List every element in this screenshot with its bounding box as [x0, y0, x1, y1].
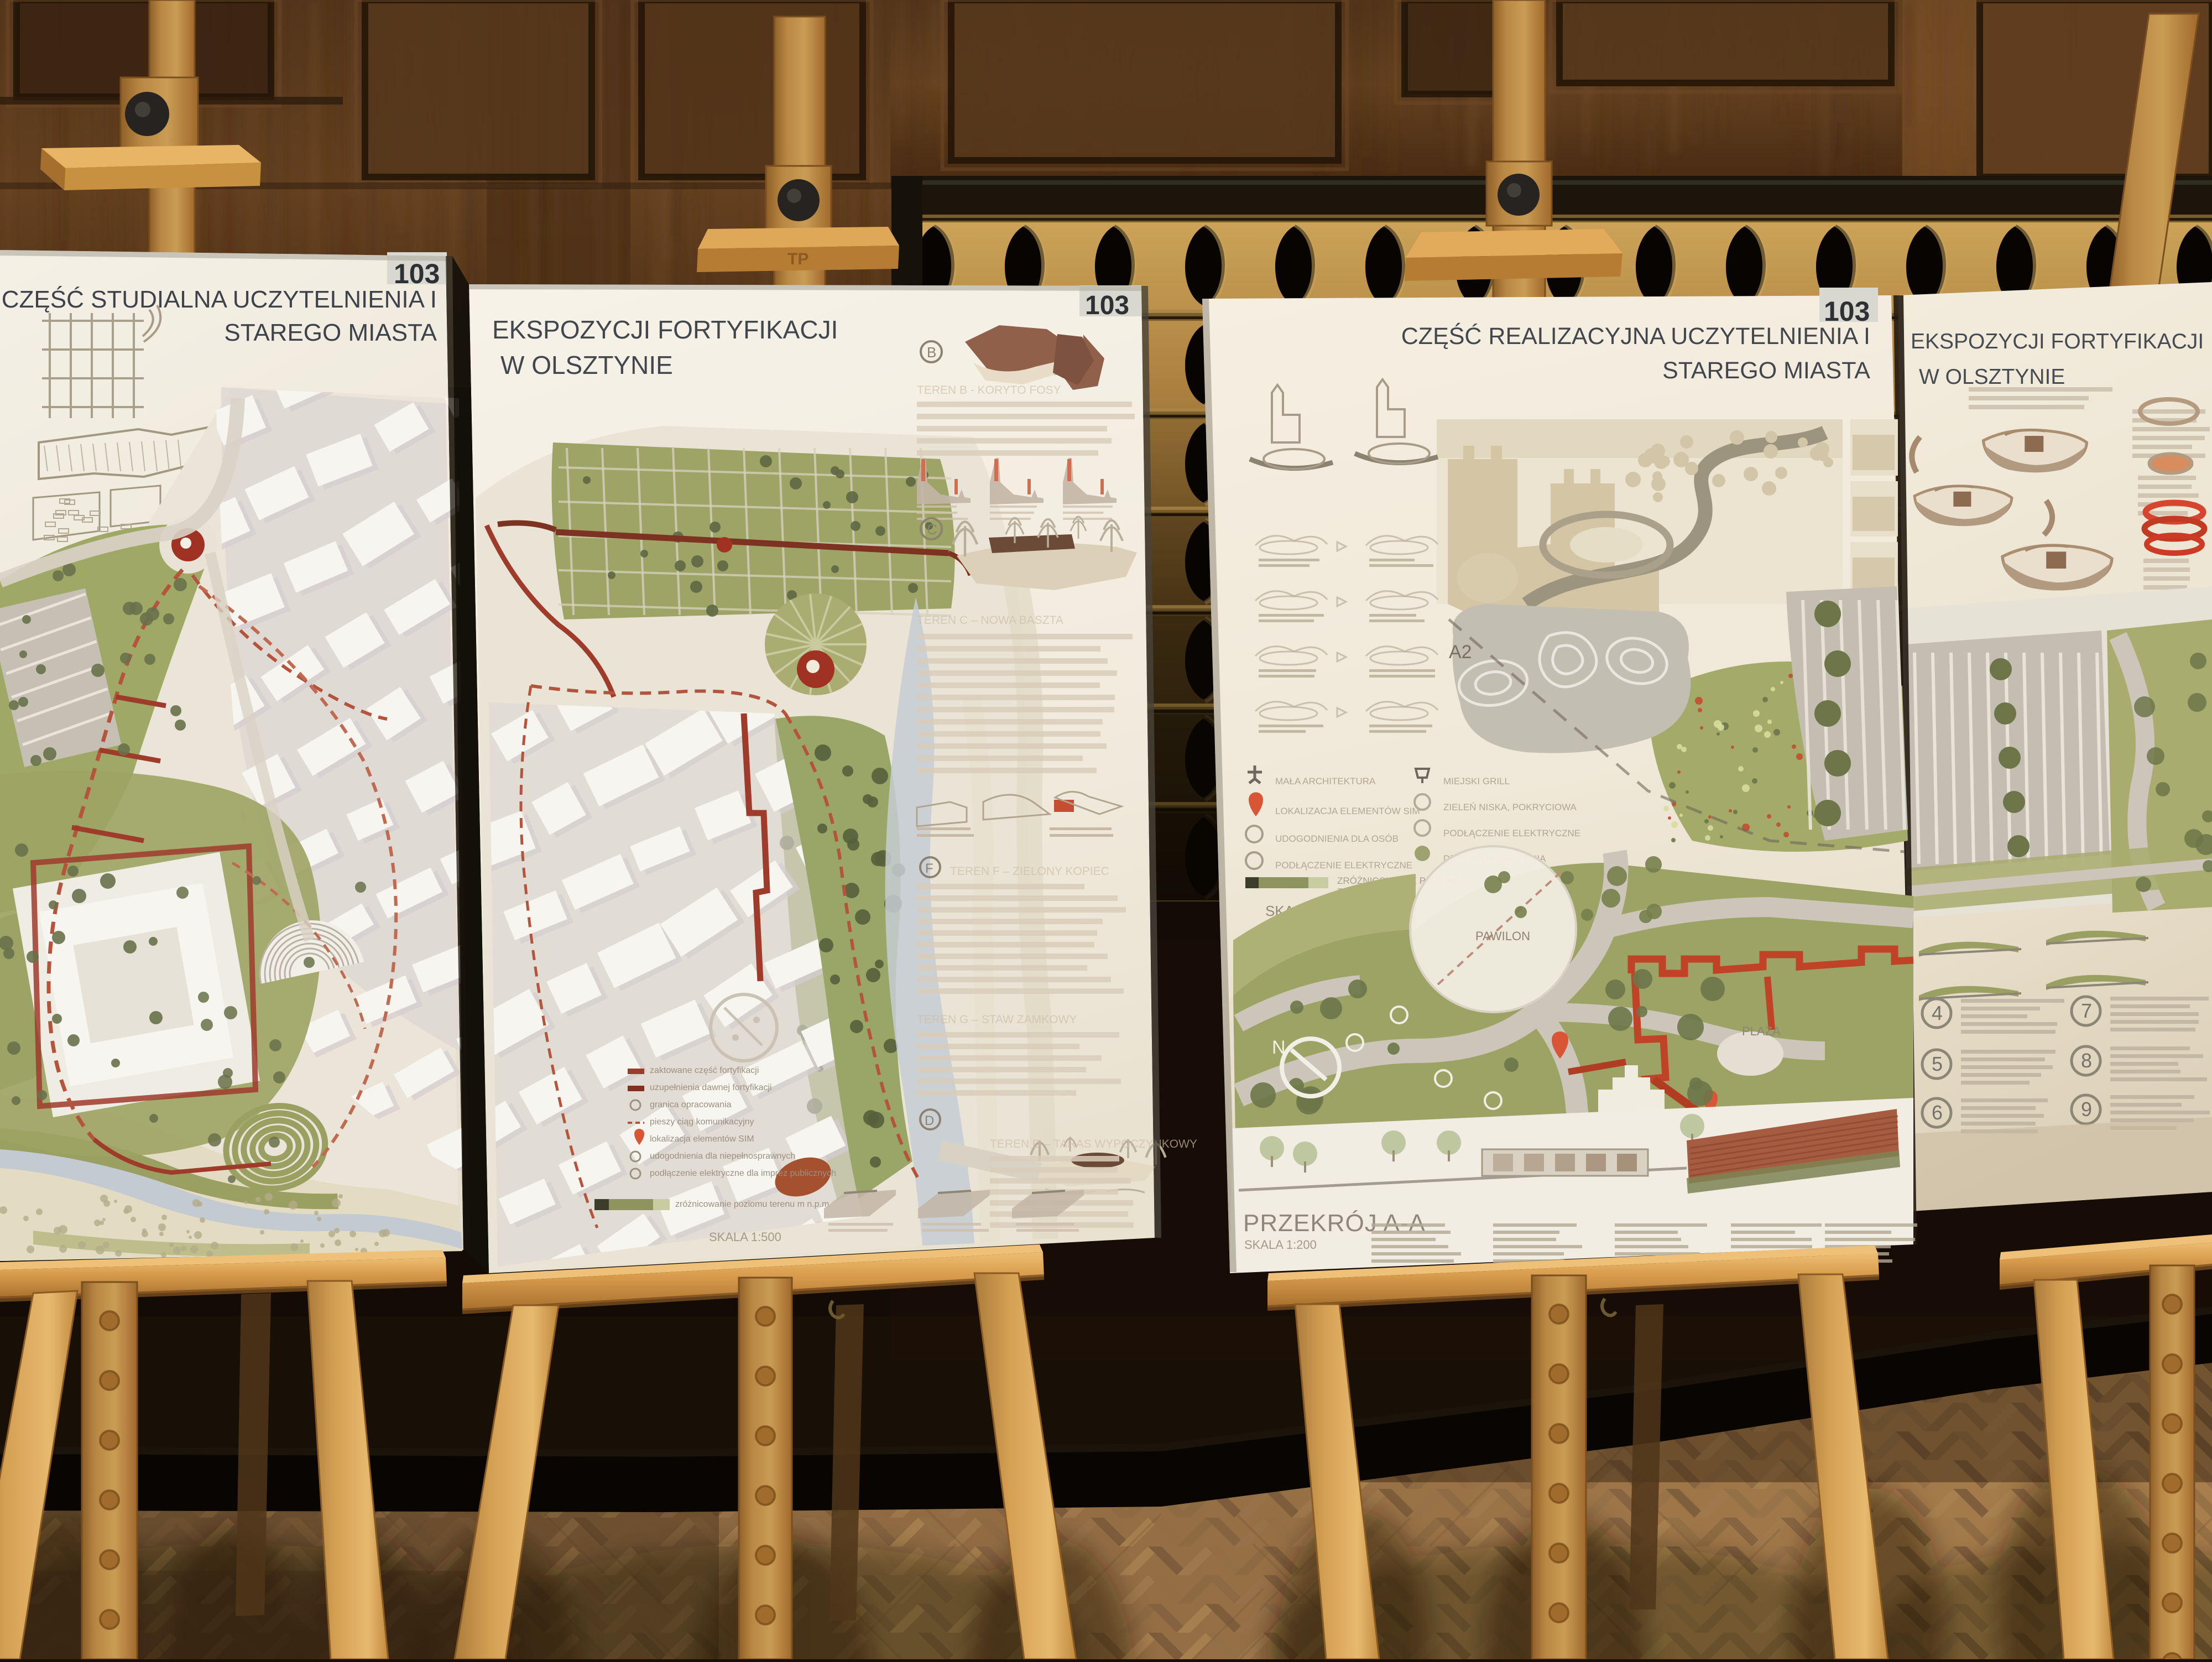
svg-text:5: 5	[1932, 1053, 1943, 1075]
svg-text:EKSPOZYCJI FORTYFIKACJI: EKSPOZYCJI FORTYFIKACJI	[492, 315, 838, 344]
svg-text:SKALA 1:200: SKALA 1:200	[1244, 1238, 1317, 1252]
svg-text:zaktowane część fortyfikacji: zaktowane część fortyfikacji	[650, 1066, 759, 1075]
svg-text:103: 103	[1085, 291, 1129, 320]
svg-text:CZĘŚĆ STUDIALNA UCZYTELNIENIA: CZĘŚĆ STUDIALNA UCZYTELNIENIA I	[2, 285, 437, 313]
svg-text:LOKALIZACJA ELEMENTÓW SIM: LOKALIZACJA ELEMENTÓW SIM	[1275, 806, 1420, 816]
svg-text:EKSPOZYCJI FORTYFIKACJI: EKSPOZYCJI FORTYFIKACJI	[1911, 330, 2204, 353]
svg-text:lokalizacja elementów SIM: lokalizacja elementów SIM	[650, 1134, 754, 1144]
svg-text:MAŁA ARCHITEKTURA: MAŁA ARCHITEKTURA	[1275, 776, 1376, 786]
svg-text:B: B	[927, 344, 936, 361]
svg-text:ZIELEŃ NISKA, POKRYCIOWA: ZIELEŃ NISKA, POKRYCIOWA	[1443, 802, 1577, 812]
svg-text:PLAZA: PLAZA	[1742, 1024, 1781, 1038]
svg-text:SKALA 1:500: SKALA 1:500	[709, 1230, 781, 1244]
svg-text:PAWILON: PAWILON	[1475, 929, 1530, 943]
svg-text:TEREN B - KORYTO FOSY: TEREN B - KORYTO FOSY	[917, 384, 1061, 397]
svg-text:A2: A2	[1449, 642, 1472, 663]
svg-text:F: F	[925, 861, 933, 876]
svg-text:TEREN D – TARAS WYPOCZYNKOWY: TEREN D – TARAS WYPOCZYNKOWY	[990, 1138, 1197, 1150]
svg-text:103: 103	[1824, 296, 1870, 327]
svg-text:8: 8	[2081, 1049, 2092, 1072]
svg-text:TEREN C – NOWA BASZTA: TEREN C – NOWA BASZTA	[917, 614, 1063, 627]
svg-text:103: 103	[394, 258, 440, 289]
svg-text:zróżnicowanie poziomu terenu m: zróżnicowanie poziomu terenu m n.p.m.	[675, 1200, 832, 1209]
svg-text:W OLSZTYNIE: W OLSZTYNIE	[1919, 365, 2065, 389]
svg-text:PODŁĄCZENIE ELEKTRYCZNE: PODŁĄCZENIE ELEKTRYCZNE	[1443, 828, 1580, 838]
svg-text:MIEJSKI GRILL: MIEJSKI GRILL	[1443, 776, 1510, 786]
svg-text:W OLSZTYNIE: W OLSZTYNIE	[500, 351, 673, 379]
svg-text:CZĘŚĆ REALIZACYJNA UCZYTELNIEN: CZĘŚĆ REALIZACYJNA UCZYTELNIENIA I	[1401, 322, 1870, 350]
svg-text:uzupełnienia dawnej fortyfikac: uzupełnienia dawnej fortyfikacji	[650, 1083, 772, 1092]
svg-text:TEREN F – ZIELONY KOPIEC: TEREN F – ZIELONY KOPIEC	[950, 865, 1109, 878]
svg-text:N: N	[1272, 1037, 1286, 1058]
svg-text:C: C	[927, 521, 937, 538]
svg-text:TEREN G – STAW ZAMKOWY: TEREN G – STAW ZAMKOWY	[917, 1013, 1077, 1026]
svg-text:udogodnienia dla niepełnospraw: udogodnienia dla niepełnosprawnych	[650, 1152, 795, 1161]
svg-text:9: 9	[2081, 1098, 2092, 1121]
svg-text:STAREGO MIASTA: STAREGO MIASTA	[1662, 357, 1870, 384]
svg-text:STAREGO MIASTA: STAREGO MIASTA	[224, 319, 437, 346]
svg-text:granica opracowania: granica opracowania	[650, 1100, 732, 1109]
svg-text:podłączenie elektryczne dla im: podłączenie elektryczne dla imprez publi…	[650, 1169, 836, 1178]
svg-text:UDOGODNIENIA DLA OSÓB: UDOGODNIENIA DLA OSÓB	[1275, 833, 1399, 844]
svg-text:PODŁĄCZENIE ELEKTRYCZNE: PODŁĄCZENIE ELEKTRYCZNE	[1275, 860, 1412, 871]
svg-text:TP: TP	[787, 250, 808, 268]
svg-text:4: 4	[1932, 1002, 1943, 1024]
svg-text:6: 6	[1932, 1101, 1943, 1124]
svg-text:pieszy ciąg komunikacyjny: pieszy ciąg komunikacyjny	[650, 1117, 754, 1127]
svg-text:7: 7	[2081, 999, 2092, 1022]
svg-text:D: D	[925, 1113, 934, 1128]
